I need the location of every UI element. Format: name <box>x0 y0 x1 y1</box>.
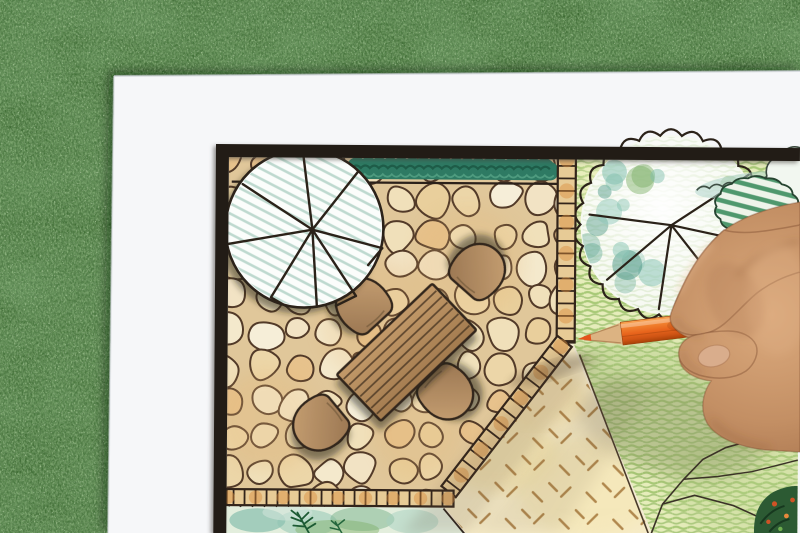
berry-dot <box>790 498 795 503</box>
berry-dot <box>766 520 770 524</box>
brick-tint <box>558 277 573 292</box>
brick-tint <box>559 215 574 230</box>
photo-of-garden-plan <box>0 0 800 533</box>
flagstone <box>526 318 551 344</box>
wash-blotch <box>613 242 630 259</box>
brick-tint <box>249 491 263 505</box>
flagstone <box>286 318 309 338</box>
berry-dot <box>772 501 777 506</box>
tree-symbol-hatched <box>225 149 384 308</box>
brick-tint <box>359 491 373 505</box>
wash-blotch <box>617 199 630 212</box>
brick-tint <box>304 491 318 505</box>
brick-tint <box>558 308 573 323</box>
brick-tint <box>386 491 400 505</box>
brick-tint <box>414 492 428 506</box>
scene <box>0 0 800 533</box>
flagstone <box>529 285 551 308</box>
leaf-dot <box>778 527 782 531</box>
hedge-bumpy-top <box>352 160 550 164</box>
flagstone <box>248 322 284 350</box>
tree-hatch-fill <box>227 151 382 306</box>
brick-tint <box>559 183 574 198</box>
brick-tint <box>331 491 345 505</box>
brick-tint <box>276 491 290 505</box>
wash-blotch <box>650 169 665 184</box>
berry-dot <box>784 514 789 519</box>
frame-left <box>213 144 229 533</box>
brick-tint <box>559 246 574 261</box>
